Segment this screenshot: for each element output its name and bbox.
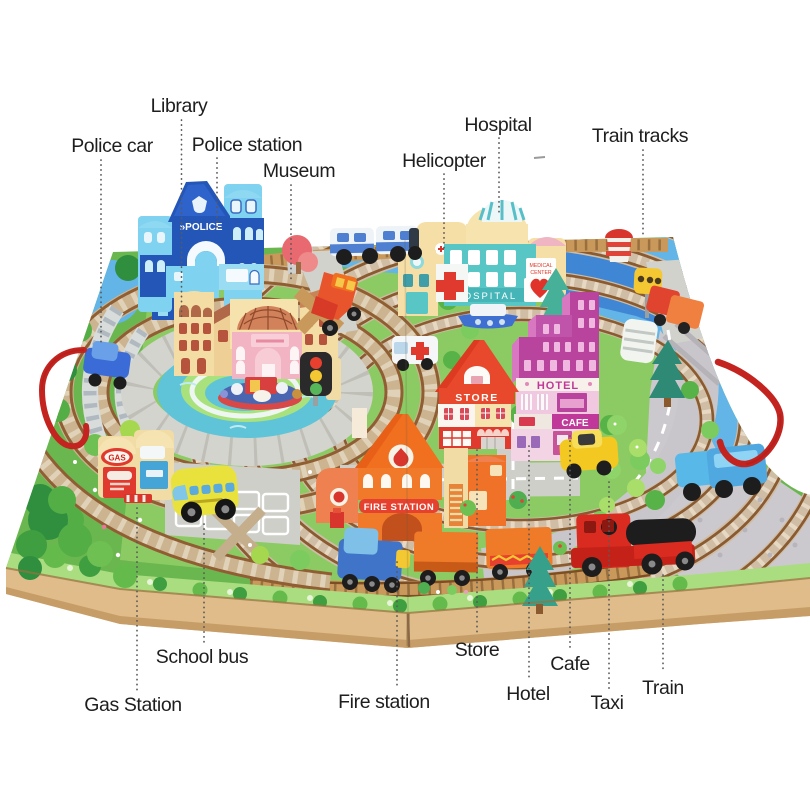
svg-text:FIRE STATION: FIRE STATION [364,502,435,513]
svg-text:Hospital: Hospital [464,114,531,136]
svg-text:Store: Store [455,639,500,661]
svg-text:CENTER: CENTER [530,270,552,276]
svg-text:Police car: Police car [71,135,154,157]
svg-text:»POLICE: »POLICE [180,222,223,233]
svg-text:MEDICAL: MEDICAL [529,263,552,269]
svg-text:Cafe: Cafe [550,653,590,675]
svg-text:Gas Station: Gas Station [84,694,182,716]
svg-text:Police station: Police station [192,134,302,156]
svg-text:GAS: GAS [108,454,126,463]
svg-text:Library: Library [151,95,208,117]
svg-text:STORE: STORE [455,392,498,404]
svg-text:Train tracks: Train tracks [592,125,689,147]
svg-text:HOTEL: HOTEL [537,380,579,392]
svg-text:Hotel: Hotel [506,683,550,705]
svg-text:CAFE: CAFE [561,418,589,429]
svg-text:Helicopter: Helicopter [402,150,487,172]
svg-text:Train: Train [642,677,684,699]
svg-text:School bus: School bus [156,646,249,668]
svg-text:Taxi: Taxi [590,692,623,714]
svg-text:Museum: Museum [263,160,335,182]
svg-text:Fire station: Fire station [338,691,430,713]
